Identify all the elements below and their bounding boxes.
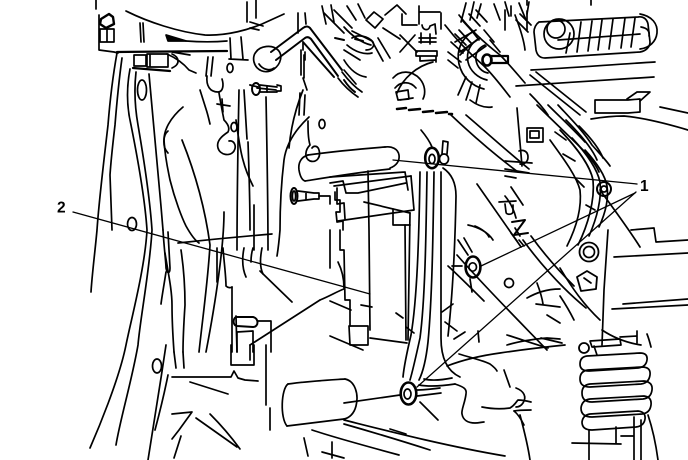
svg-text:2: 2 bbox=[57, 200, 66, 217]
svg-text:1: 1 bbox=[640, 178, 649, 195]
